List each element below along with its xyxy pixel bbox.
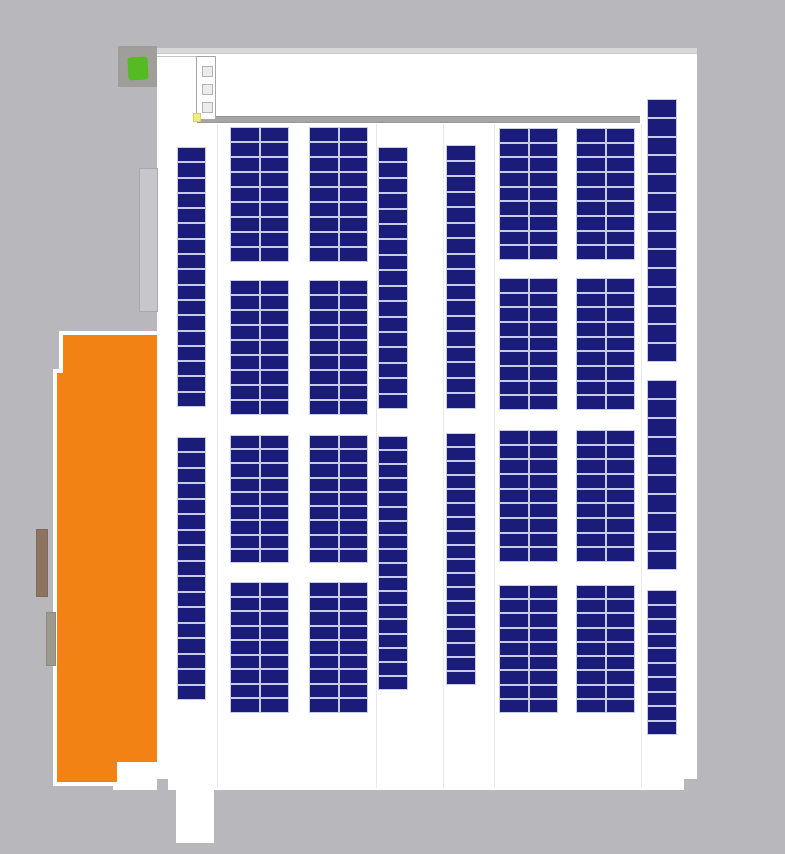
solar-panel[interactable] — [379, 479, 407, 491]
solar-panel[interactable] — [500, 657, 528, 669]
solar-panel[interactable] — [261, 521, 289, 533]
solar-panel[interactable] — [530, 548, 558, 561]
solar-panel[interactable] — [310, 612, 338, 625]
solar-panel[interactable] — [340, 401, 368, 414]
solar-panel[interactable] — [231, 248, 259, 261]
solar-panel[interactable] — [530, 188, 558, 201]
solar-panel[interactable] — [447, 239, 475, 253]
solar-panel[interactable] — [530, 396, 558, 409]
solar-panel[interactable] — [607, 308, 635, 321]
solar-panel-array-col-f-group-1[interactable] — [499, 128, 558, 260]
solar-panel[interactable] — [310, 128, 338, 141]
solar-panel[interactable] — [447, 504, 475, 516]
solar-panel[interactable] — [648, 400, 676, 417]
solar-panel[interactable] — [648, 620, 676, 633]
solar-panel[interactable] — [648, 138, 676, 155]
solar-panel[interactable] — [340, 699, 368, 712]
solar-panel[interactable] — [577, 657, 605, 669]
solar-panel[interactable] — [607, 144, 635, 157]
solar-panel[interactable] — [447, 286, 475, 300]
solar-panel[interactable] — [379, 271, 407, 284]
solar-panel[interactable] — [648, 325, 676, 342]
annex-gray-block[interactable] — [46, 612, 56, 666]
solar-panel[interactable] — [577, 396, 605, 409]
solar-panel-array-col-b-group-2[interactable] — [230, 280, 289, 415]
solar-panel[interactable] — [648, 495, 676, 512]
solar-panel[interactable] — [310, 479, 338, 491]
solar-panel[interactable] — [577, 246, 605, 259]
solar-panel[interactable] — [530, 144, 558, 157]
solar-panel[interactable] — [340, 173, 368, 186]
solar-panel[interactable] — [530, 367, 558, 380]
solar-panel[interactable] — [648, 213, 676, 230]
solar-panel[interactable] — [648, 722, 676, 735]
solar-panel[interactable] — [648, 307, 676, 324]
solar-panel[interactable] — [340, 464, 368, 476]
orange-building[interactable] — [53, 331, 157, 786]
solar-panel[interactable] — [648, 533, 676, 550]
solar-panel-array-col-d-group-2[interactable] — [378, 436, 408, 690]
roof-hatch-box[interactable] — [202, 84, 213, 95]
solar-panel[interactable] — [231, 685, 259, 698]
solar-panel[interactable] — [447, 317, 475, 331]
solar-panel[interactable] — [577, 686, 605, 698]
solar-panel[interactable] — [261, 436, 289, 448]
solar-panel[interactable] — [648, 269, 676, 286]
roof-protrusion-stairwell[interactable] — [176, 790, 214, 843]
solar-panel[interactable] — [648, 288, 676, 305]
solar-panel[interactable] — [379, 179, 407, 192]
solar-panel[interactable] — [447, 630, 475, 642]
solar-panel[interactable] — [607, 323, 635, 336]
solar-panel[interactable] — [648, 678, 676, 691]
solar-panel[interactable] — [340, 450, 368, 462]
solar-panel[interactable] — [500, 246, 528, 259]
solar-panel[interactable] — [231, 493, 259, 505]
solar-panel[interactable] — [178, 224, 205, 237]
solar-panel[interactable] — [577, 671, 605, 683]
solar-panel[interactable] — [500, 643, 528, 655]
solar-panel-array-col-b-group-1[interactable] — [230, 127, 289, 262]
solar-panel[interactable] — [310, 386, 338, 399]
solar-panel[interactable] — [648, 100, 676, 117]
solar-panel[interactable] — [340, 493, 368, 505]
solar-panel[interactable] — [340, 233, 368, 246]
solar-panel[interactable] — [577, 519, 605, 532]
solar-panel[interactable] — [310, 598, 338, 611]
solar-panel[interactable] — [261, 281, 289, 294]
solar-panel[interactable] — [447, 146, 475, 160]
solar-panel[interactable] — [447, 476, 475, 488]
solar-panel[interactable] — [530, 586, 558, 598]
solar-panel[interactable] — [447, 224, 475, 238]
solar-panel[interactable] — [447, 658, 475, 670]
solar-panel-array-col-b-group-3[interactable] — [230, 435, 289, 563]
solar-panel[interactable] — [447, 560, 475, 572]
solar-panel[interactable] — [261, 641, 289, 654]
solar-panel[interactable] — [500, 396, 528, 409]
solar-panel[interactable] — [379, 578, 407, 590]
solar-panel[interactable] — [261, 685, 289, 698]
solar-panel[interactable] — [340, 479, 368, 491]
solar-panel[interactable] — [500, 173, 528, 186]
solar-panel[interactable] — [500, 129, 528, 142]
solar-panel[interactable] — [261, 670, 289, 683]
solar-panel[interactable] — [261, 143, 289, 156]
solar-panel[interactable] — [178, 148, 205, 161]
solar-panel[interactable] — [340, 311, 368, 324]
solar-panel[interactable] — [607, 586, 635, 598]
solar-panel[interactable] — [178, 286, 205, 299]
solar-panel-array-col-d-group-1[interactable] — [378, 147, 408, 409]
solar-panel[interactable] — [231, 536, 259, 548]
solar-panel[interactable] — [310, 203, 338, 216]
solar-panel[interactable] — [500, 600, 528, 612]
solar-panel[interactable] — [447, 162, 475, 176]
solar-panel[interactable] — [310, 356, 338, 369]
solar-panel[interactable] — [607, 475, 635, 488]
solar-panel[interactable] — [310, 436, 338, 448]
solar-panel[interactable] — [447, 448, 475, 460]
solar-panel[interactable] — [447, 363, 475, 377]
solar-panel[interactable] — [379, 163, 407, 176]
solar-panel[interactable] — [577, 352, 605, 365]
solar-panel[interactable] — [648, 552, 676, 569]
solar-panel[interactable] — [231, 188, 259, 201]
solar-panel[interactable] — [500, 279, 528, 292]
solar-panel[interactable] — [340, 281, 368, 294]
solar-panel[interactable] — [310, 583, 338, 596]
solar-panel[interactable] — [261, 464, 289, 476]
solar-panel[interactable] — [178, 270, 205, 283]
solar-panel[interactable] — [231, 479, 259, 491]
solar-panel[interactable] — [310, 685, 338, 698]
solar-panel[interactable] — [577, 460, 605, 473]
solar-panel[interactable] — [530, 643, 558, 655]
solar-panel[interactable] — [607, 686, 635, 698]
solar-panel[interactable] — [607, 202, 635, 215]
solar-panel[interactable] — [530, 686, 558, 698]
solar-panel[interactable] — [577, 431, 605, 444]
solar-panel[interactable] — [231, 450, 259, 462]
solar-panel[interactable] — [310, 311, 338, 324]
solar-panel[interactable] — [231, 612, 259, 625]
solar-panel[interactable] — [530, 600, 558, 612]
solar-panel[interactable] — [231, 173, 259, 186]
solar-panel[interactable] — [607, 188, 635, 201]
solar-panel[interactable] — [577, 173, 605, 186]
solar-panel[interactable] — [231, 436, 259, 448]
solar-panel[interactable] — [648, 457, 676, 474]
solar-panel[interactable] — [530, 232, 558, 245]
solar-panel[interactable] — [607, 519, 635, 532]
solar-panel[interactable] — [178, 377, 205, 390]
solar-panel[interactable] — [500, 460, 528, 473]
solar-panel[interactable] — [500, 504, 528, 517]
solar-panel[interactable] — [530, 614, 558, 626]
solar-panel[interactable] — [500, 144, 528, 157]
solar-panel[interactable] — [530, 504, 558, 517]
solar-panel[interactable] — [379, 620, 407, 632]
solar-panel[interactable] — [231, 296, 259, 309]
solar-panel[interactable] — [500, 202, 528, 215]
solar-panel[interactable] — [261, 401, 289, 414]
solar-panel[interactable] — [577, 504, 605, 517]
solar-panel[interactable] — [500, 352, 528, 365]
solar-panel[interactable] — [648, 693, 676, 706]
solar-panel[interactable] — [500, 294, 528, 307]
solar-panel[interactable] — [379, 522, 407, 534]
solar-panel[interactable] — [310, 401, 338, 414]
solar-panel[interactable] — [577, 308, 605, 321]
solar-panel[interactable] — [530, 490, 558, 503]
solar-panel[interactable] — [178, 332, 205, 345]
yellow-reference-marker[interactable] — [193, 113, 201, 122]
solar-panel-array-col-a-group-2[interactable] — [177, 437, 206, 700]
solar-panel[interactable] — [447, 574, 475, 586]
solar-panel-array-col-b-group-4[interactable] — [230, 582, 289, 713]
side-equipment-rect[interactable] — [139, 168, 158, 312]
solar-panel[interactable] — [178, 500, 205, 513]
solar-panel[interactable] — [340, 550, 368, 562]
solar-panel[interactable] — [231, 598, 259, 611]
solar-panel[interactable] — [530, 446, 558, 459]
solar-panel[interactable] — [447, 301, 475, 315]
solar-panel[interactable] — [178, 347, 205, 360]
solar-panel[interactable] — [231, 143, 259, 156]
solar-panel[interactable] — [447, 193, 475, 207]
solar-panel[interactable] — [648, 419, 676, 436]
solar-panel[interactable] — [607, 396, 635, 409]
solar-panel[interactable] — [530, 173, 558, 186]
solar-panel[interactable] — [530, 308, 558, 321]
solar-panel[interactable] — [261, 386, 289, 399]
solar-panel[interactable] — [340, 143, 368, 156]
solar-panel[interactable] — [607, 246, 635, 259]
solar-panel[interactable] — [447, 490, 475, 502]
solar-panel[interactable] — [530, 657, 558, 669]
solar-panel[interactable] — [447, 672, 475, 684]
solar-panel[interactable] — [261, 479, 289, 491]
solar-panel[interactable] — [231, 699, 259, 712]
solar-panel[interactable] — [178, 438, 205, 451]
solar-panel[interactable] — [178, 686, 205, 699]
solar-panel[interactable] — [379, 287, 407, 300]
solar-panel[interactable] — [310, 670, 338, 683]
solar-panel[interactable] — [379, 465, 407, 477]
solar-panel[interactable] — [379, 677, 407, 689]
solar-panel[interactable] — [310, 248, 338, 261]
solar-panel[interactable] — [178, 639, 205, 652]
solar-panel[interactable] — [530, 431, 558, 444]
solar-panel-array-col-f-group-3[interactable] — [499, 430, 558, 562]
solar-panel[interactable] — [231, 641, 259, 654]
solar-panel[interactable] — [231, 550, 259, 562]
solar-panel-array-col-c-group-1[interactable] — [309, 127, 368, 262]
solar-panel[interactable] — [607, 382, 635, 395]
solar-panel[interactable] — [340, 356, 368, 369]
solar-panel[interactable] — [178, 624, 205, 637]
solar-panel[interactable] — [500, 614, 528, 626]
solar-panel[interactable] — [310, 326, 338, 339]
solar-panel[interactable] — [530, 671, 558, 683]
solar-panel[interactable] — [340, 248, 368, 261]
solar-panel[interactable] — [447, 518, 475, 530]
solar-panel[interactable] — [231, 158, 259, 171]
solar-panel[interactable] — [530, 534, 558, 547]
solar-panel[interactable] — [340, 326, 368, 339]
solar-panel[interactable] — [261, 627, 289, 640]
solar-panel[interactable] — [261, 371, 289, 384]
solar-panel[interactable] — [577, 367, 605, 380]
solar-panel[interactable] — [261, 612, 289, 625]
solar-panel[interactable] — [648, 232, 676, 249]
solar-panel[interactable] — [607, 657, 635, 669]
solar-panel[interactable] — [607, 614, 635, 626]
solar-panel[interactable] — [577, 534, 605, 547]
solar-panel[interactable] — [500, 217, 528, 230]
solar-panel[interactable] — [500, 232, 528, 245]
solar-panel[interactable] — [340, 507, 368, 519]
solar-panel[interactable] — [530, 382, 558, 395]
solar-panel-array-col-f-group-4[interactable] — [499, 585, 558, 713]
solar-panel[interactable] — [261, 699, 289, 712]
solar-panel[interactable] — [178, 670, 205, 683]
solar-panel[interactable] — [500, 629, 528, 641]
solar-panel[interactable] — [379, 256, 407, 269]
solar-panel[interactable] — [607, 431, 635, 444]
solar-panel[interactable] — [577, 232, 605, 245]
solar-panel[interactable] — [530, 629, 558, 641]
solar-panel[interactable] — [607, 158, 635, 171]
solar-panel[interactable] — [379, 210, 407, 223]
solar-panel[interactable] — [231, 464, 259, 476]
solar-panel[interactable] — [261, 188, 289, 201]
solar-panel[interactable] — [379, 536, 407, 548]
solar-panel[interactable] — [340, 685, 368, 698]
solar-panel[interactable] — [310, 143, 338, 156]
solar-panel[interactable] — [379, 437, 407, 449]
solar-panel[interactable] — [648, 591, 676, 604]
solar-panel[interactable] — [577, 586, 605, 598]
solar-panel[interactable] — [447, 644, 475, 656]
solar-panel[interactable] — [340, 296, 368, 309]
solar-panel[interactable] — [261, 550, 289, 562]
solar-panel[interactable] — [310, 371, 338, 384]
solar-panel[interactable] — [261, 203, 289, 216]
solar-panel[interactable] — [310, 507, 338, 519]
solar-panel[interactable] — [261, 450, 289, 462]
solar-panel[interactable] — [577, 643, 605, 655]
solar-panel[interactable] — [310, 188, 338, 201]
solar-panel[interactable] — [340, 436, 368, 448]
solar-panel[interactable] — [500, 188, 528, 201]
solar-panel[interactable] — [500, 382, 528, 395]
solar-panel[interactable] — [379, 635, 407, 647]
solar-panel[interactable] — [379, 318, 407, 331]
solar-panel[interactable] — [379, 333, 407, 346]
solar-panel[interactable] — [261, 583, 289, 596]
solar-panel[interactable] — [648, 635, 676, 648]
solar-panel[interactable] — [379, 225, 407, 238]
solar-panel[interactable] — [379, 240, 407, 253]
solar-panel[interactable] — [500, 431, 528, 444]
solar-panel[interactable] — [379, 649, 407, 661]
solar-panel[interactable] — [310, 296, 338, 309]
solar-panel[interactable] — [648, 664, 676, 677]
solar-panel[interactable] — [577, 700, 605, 712]
solar-panel[interactable] — [340, 386, 368, 399]
solar-panel[interactable] — [178, 453, 205, 466]
solar-panel[interactable] — [261, 656, 289, 669]
solar-panel[interactable] — [607, 173, 635, 186]
solar-panel[interactable] — [340, 670, 368, 683]
solar-panel[interactable] — [447, 255, 475, 269]
solar-panel-array-col-e-group-2[interactable] — [446, 433, 476, 685]
solar-panel[interactable] — [379, 348, 407, 361]
solar-panel[interactable] — [178, 484, 205, 497]
solar-panel[interactable] — [231, 128, 259, 141]
solar-panel[interactable] — [577, 158, 605, 171]
solar-panel[interactable] — [231, 583, 259, 596]
solar-panel[interactable] — [577, 600, 605, 612]
solar-panel[interactable] — [231, 311, 259, 324]
solar-panel[interactable] — [340, 203, 368, 216]
solar-panel[interactable] — [340, 521, 368, 533]
solar-panel[interactable] — [340, 128, 368, 141]
solar-panel[interactable] — [379, 364, 407, 377]
solar-panel[interactable] — [447, 379, 475, 393]
solar-panel[interactable] — [310, 173, 338, 186]
solar-panel[interactable] — [340, 612, 368, 625]
solar-panel[interactable] — [530, 338, 558, 351]
solar-panel[interactable] — [310, 493, 338, 505]
solar-panel[interactable] — [340, 583, 368, 596]
solar-panel[interactable] — [447, 434, 475, 446]
solar-panel[interactable] — [577, 144, 605, 157]
solar-panel[interactable] — [577, 294, 605, 307]
solar-panel[interactable] — [340, 218, 368, 231]
solar-panel-array-col-g-group-4[interactable] — [576, 585, 635, 713]
solar-panel[interactable] — [500, 548, 528, 561]
solar-panel[interactable] — [231, 507, 259, 519]
solar-panel[interactable] — [178, 608, 205, 621]
solar-panel[interactable] — [577, 629, 605, 641]
solar-panel[interactable] — [530, 700, 558, 712]
solar-panel[interactable] — [530, 323, 558, 336]
solar-panel[interactable] — [648, 476, 676, 493]
solar-panel[interactable] — [178, 531, 205, 544]
solar-panel[interactable] — [500, 475, 528, 488]
solar-panel[interactable] — [231, 281, 259, 294]
roof-hatch-box[interactable] — [202, 66, 213, 77]
solar-panel[interactable] — [310, 464, 338, 476]
solar-panel[interactable] — [607, 534, 635, 547]
solar-panel[interactable] — [231, 627, 259, 640]
solar-panel[interactable] — [447, 532, 475, 544]
solar-panel[interactable] — [500, 367, 528, 380]
solar-panel[interactable] — [178, 655, 205, 668]
solar-panel[interactable] — [500, 586, 528, 598]
solar-panel-array-col-h-group-3[interactable] — [647, 590, 677, 735]
solar-panel[interactable] — [577, 279, 605, 292]
solar-panel[interactable] — [231, 203, 259, 216]
solar-panel[interactable] — [261, 128, 289, 141]
solar-panel-array-col-g-group-1[interactable] — [576, 128, 635, 260]
solar-panel[interactable] — [178, 562, 205, 575]
solar-panel[interactable] — [310, 641, 338, 654]
solar-panel[interactable] — [340, 188, 368, 201]
